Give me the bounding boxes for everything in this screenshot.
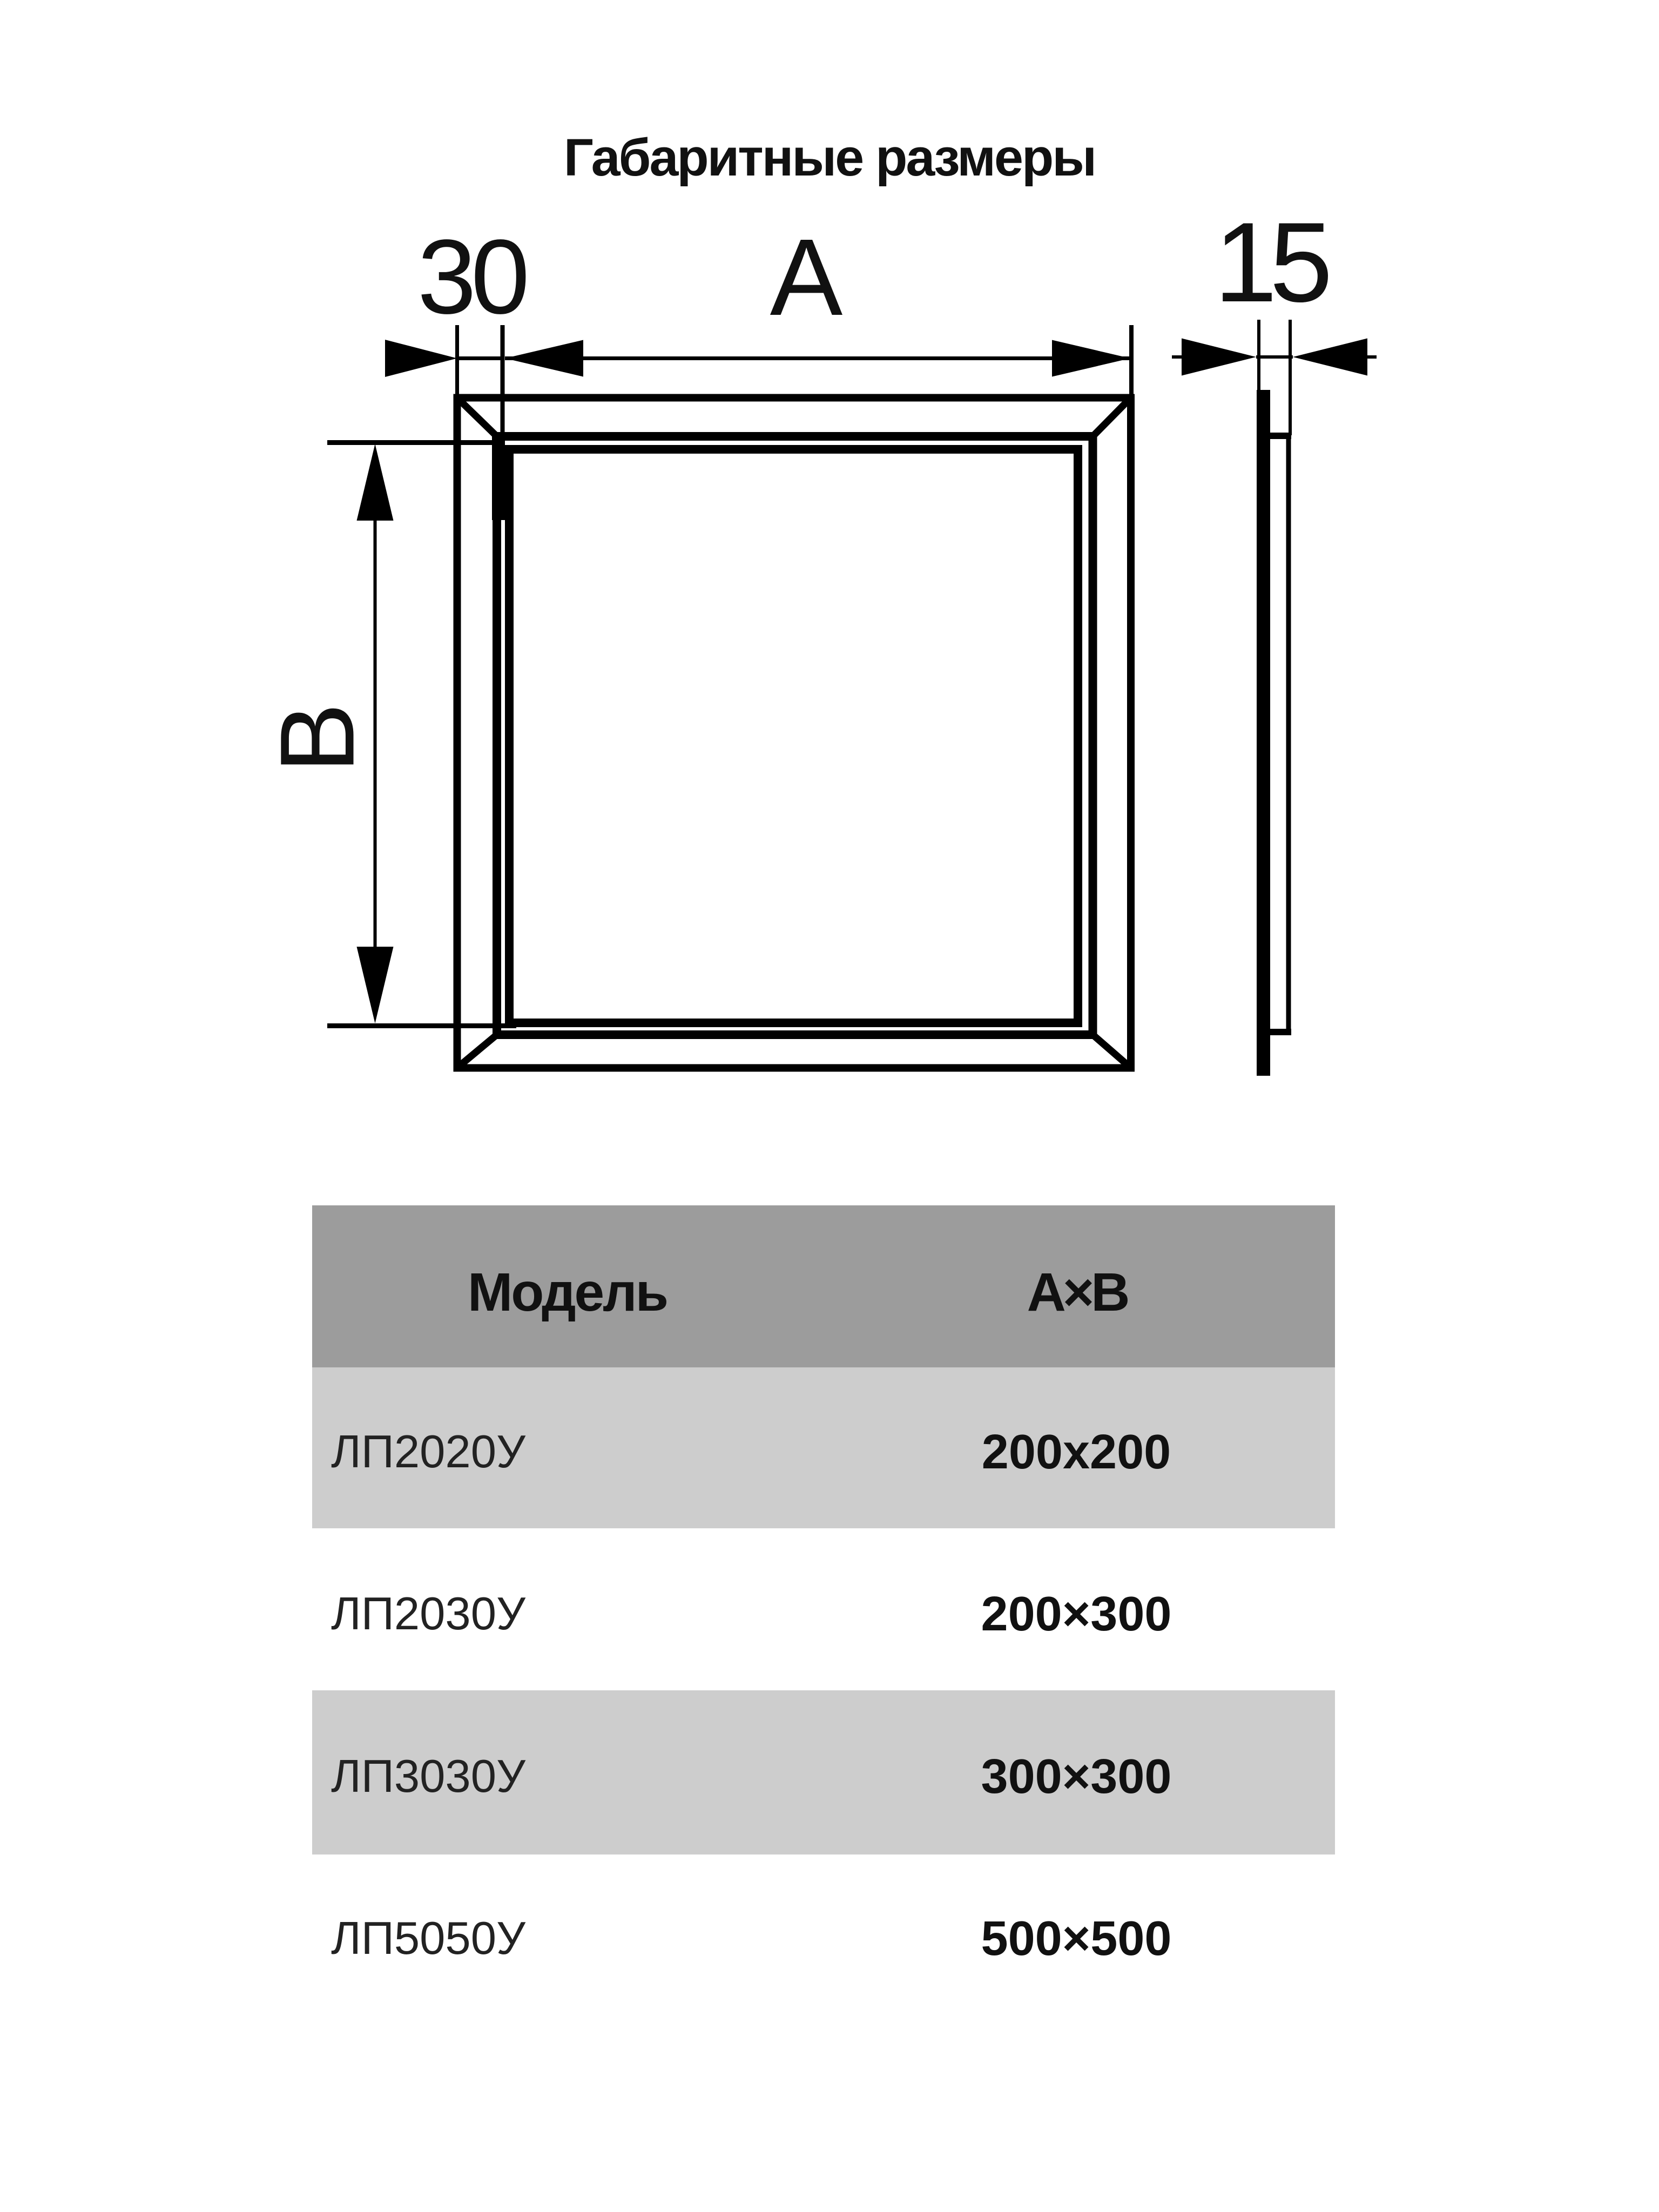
svg-text:ЛП5050У: ЛП5050У	[331, 1913, 526, 1964]
svg-text:Габаритные размеры: Габаритные размеры	[564, 128, 1095, 187]
svg-text:B: B	[259, 703, 376, 773]
svg-text:200x200: 200x200	[982, 1425, 1171, 1479]
svg-text:Модель: Модель	[468, 1262, 667, 1323]
svg-text:ЛП2030У: ЛП2030У	[331, 1588, 526, 1640]
svg-text:A: A	[770, 216, 843, 338]
svg-text:300×300: 300×300	[981, 1750, 1172, 1804]
svg-text:200×300: 200×300	[981, 1587, 1172, 1641]
svg-text:ЛП3030У: ЛП3030У	[331, 1751, 526, 1802]
svg-text:А×В: А×В	[1027, 1262, 1128, 1323]
svg-text:15: 15	[1214, 199, 1328, 326]
svg-text:ЛП2020У: ЛП2020У	[331, 1426, 526, 1478]
svg-text:30: 30	[417, 218, 526, 336]
svg-text:500×500: 500×500	[981, 1912, 1172, 1966]
